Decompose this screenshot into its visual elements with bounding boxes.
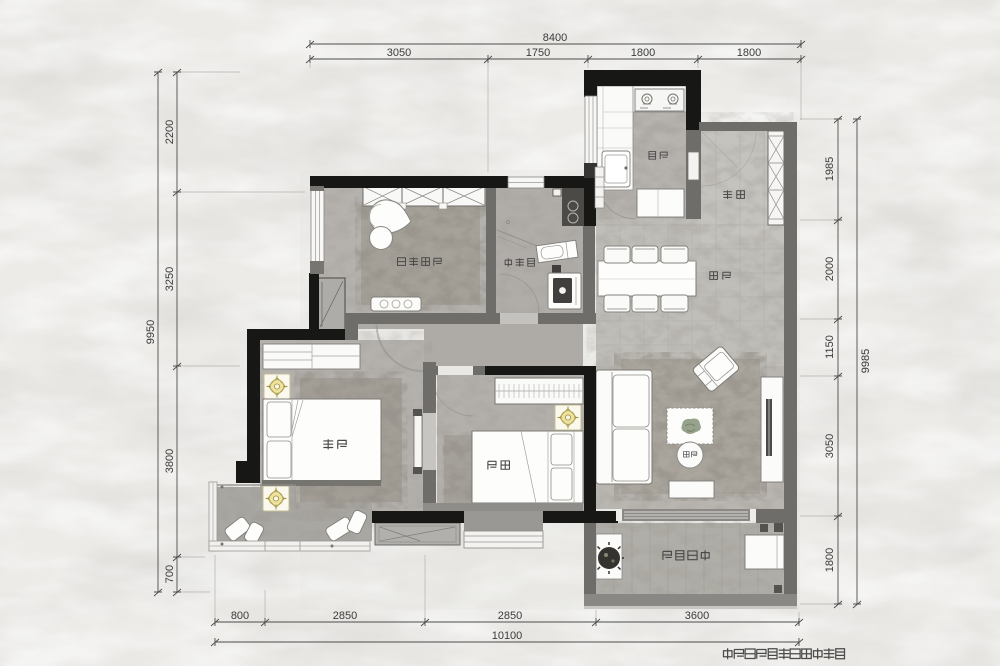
svg-text:1985: 1985 [824, 157, 836, 181]
svg-text:3050: 3050 [387, 47, 411, 59]
svg-text:2850: 2850 [333, 610, 357, 622]
svg-text:2200: 2200 [164, 120, 176, 144]
svg-text:10100: 10100 [492, 630, 523, 642]
svg-text:3600: 3600 [685, 610, 709, 622]
svg-text:2000: 2000 [824, 257, 836, 281]
svg-text:1800: 1800 [824, 548, 836, 572]
svg-text:8400: 8400 [543, 32, 567, 44]
svg-text:3800: 3800 [164, 449, 176, 473]
svg-text:9985: 9985 [860, 349, 872, 373]
svg-text:800: 800 [231, 610, 249, 622]
svg-text:3250: 3250 [164, 267, 176, 291]
svg-text:700: 700 [164, 565, 176, 583]
svg-text:3050: 3050 [824, 434, 836, 458]
svg-text:9950: 9950 [145, 320, 157, 344]
svg-text:1800: 1800 [737, 47, 761, 59]
svg-text:1800: 1800 [631, 47, 655, 59]
svg-text:1150: 1150 [824, 335, 836, 359]
svg-text:2850: 2850 [498, 610, 522, 622]
svg-text:1750: 1750 [526, 47, 550, 59]
